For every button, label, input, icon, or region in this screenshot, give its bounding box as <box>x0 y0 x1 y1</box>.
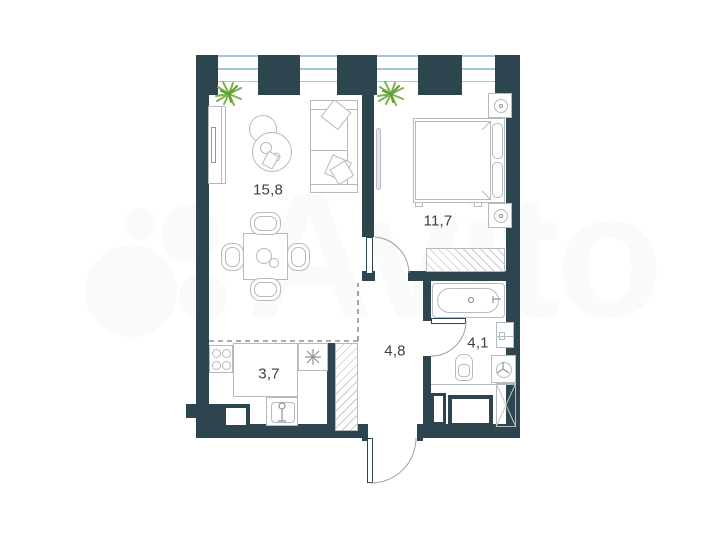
bed-foot <box>415 202 423 207</box>
dining-chair-top <box>250 212 281 235</box>
nightstand-lamp-dot <box>499 214 503 218</box>
wardrobe <box>426 248 505 272</box>
chair-seat-line <box>225 247 240 267</box>
kitchen-area-label: 3,7 <box>258 366 279 383</box>
kitchen-sink-cabinet <box>266 397 298 426</box>
bed-foot <box>474 202 482 207</box>
wall-tv <box>376 128 381 190</box>
wall-bathroom-left-upper <box>423 281 431 321</box>
fridge <box>298 343 328 371</box>
wall-pier <box>495 55 520 95</box>
bathroom-door-leaf <box>431 318 466 324</box>
stove <box>209 345 233 373</box>
entrance-door-arc <box>370 438 416 483</box>
watermark-circle <box>161 205 219 263</box>
bathtub-inner <box>437 288 499 313</box>
stove-burner <box>222 361 231 370</box>
bed-blanket <box>415 121 491 200</box>
watermark-circle <box>85 245 177 337</box>
bed-pillow <box>492 162 503 198</box>
duct-shaft <box>448 395 493 427</box>
window-glazing-line <box>300 68 337 70</box>
bathroom-area-label: 4,1 <box>467 335 488 352</box>
hall-closet <box>335 343 358 431</box>
table-decor-cup <box>269 258 279 268</box>
coffee-table <box>252 132 292 172</box>
wall-pier <box>418 55 462 95</box>
washing-machine-drum <box>496 362 512 378</box>
bedroom-door-leaf <box>366 237 373 274</box>
bedroom-area-label: 11,7 <box>424 213 453 230</box>
plant-living-room <box>216 82 241 105</box>
nightstand <box>488 93 512 118</box>
wall-pier <box>258 55 300 95</box>
watermark-circle <box>124 208 156 240</box>
wall-bump <box>186 404 196 418</box>
stove-burner <box>212 349 221 358</box>
wall-notch <box>226 408 246 425</box>
nightstand <box>488 203 512 228</box>
bathroom-vanity <box>496 322 514 348</box>
window-glazing-line <box>218 68 258 70</box>
entrance-door-leaf <box>367 438 373 483</box>
chair-seat-line <box>254 282 277 297</box>
bathtub <box>432 283 505 318</box>
window <box>377 55 418 82</box>
dining-chair-left <box>221 243 244 271</box>
chair-seat-line <box>254 216 277 231</box>
wall-living-bedroom <box>362 95 374 237</box>
window-glazing-line <box>377 68 418 70</box>
toilet <box>455 354 473 381</box>
floorplan: Avito <box>0 0 720 540</box>
stove-burner <box>212 361 221 370</box>
sofa-back-line <box>347 109 348 185</box>
window <box>300 55 337 82</box>
dining-chair-right <box>287 243 310 271</box>
kitchen-sink-bowl <box>271 402 295 423</box>
sofa-armrest-line <box>311 184 357 185</box>
nightstand-lamp-dot <box>499 104 503 108</box>
tv-console <box>208 106 226 184</box>
vanity-sink <box>499 332 505 340</box>
tv-console-shelf-line <box>221 107 222 183</box>
chair-seat-line <box>291 247 306 267</box>
toilet-bowl <box>458 364 470 377</box>
wall-bathroom-left-lower <box>423 356 431 424</box>
dining-chair-bottom <box>250 278 281 301</box>
hallway-area-label: 4,8 <box>384 343 405 360</box>
plant-bedroom <box>378 82 403 105</box>
stove-burner <box>222 349 231 358</box>
utility-cabinet <box>496 383 516 427</box>
window-glazing-line <box>462 68 495 70</box>
wall-bedroom-bathroom <box>408 271 506 281</box>
window <box>462 55 495 82</box>
window <box>218 55 258 82</box>
sofa-armrest-line <box>311 109 357 110</box>
sofa-seat-line <box>311 150 347 151</box>
washing-machine <box>491 355 516 383</box>
wall-pier <box>337 55 377 95</box>
tv-screen <box>211 127 216 163</box>
bed-pillow <box>492 123 503 159</box>
sofa <box>310 100 358 193</box>
living-room-area-label: 15,8 <box>253 182 283 199</box>
wall-pier <box>196 55 218 95</box>
wall-kitchen <box>327 343 335 424</box>
duct-shaft <box>431 393 446 425</box>
